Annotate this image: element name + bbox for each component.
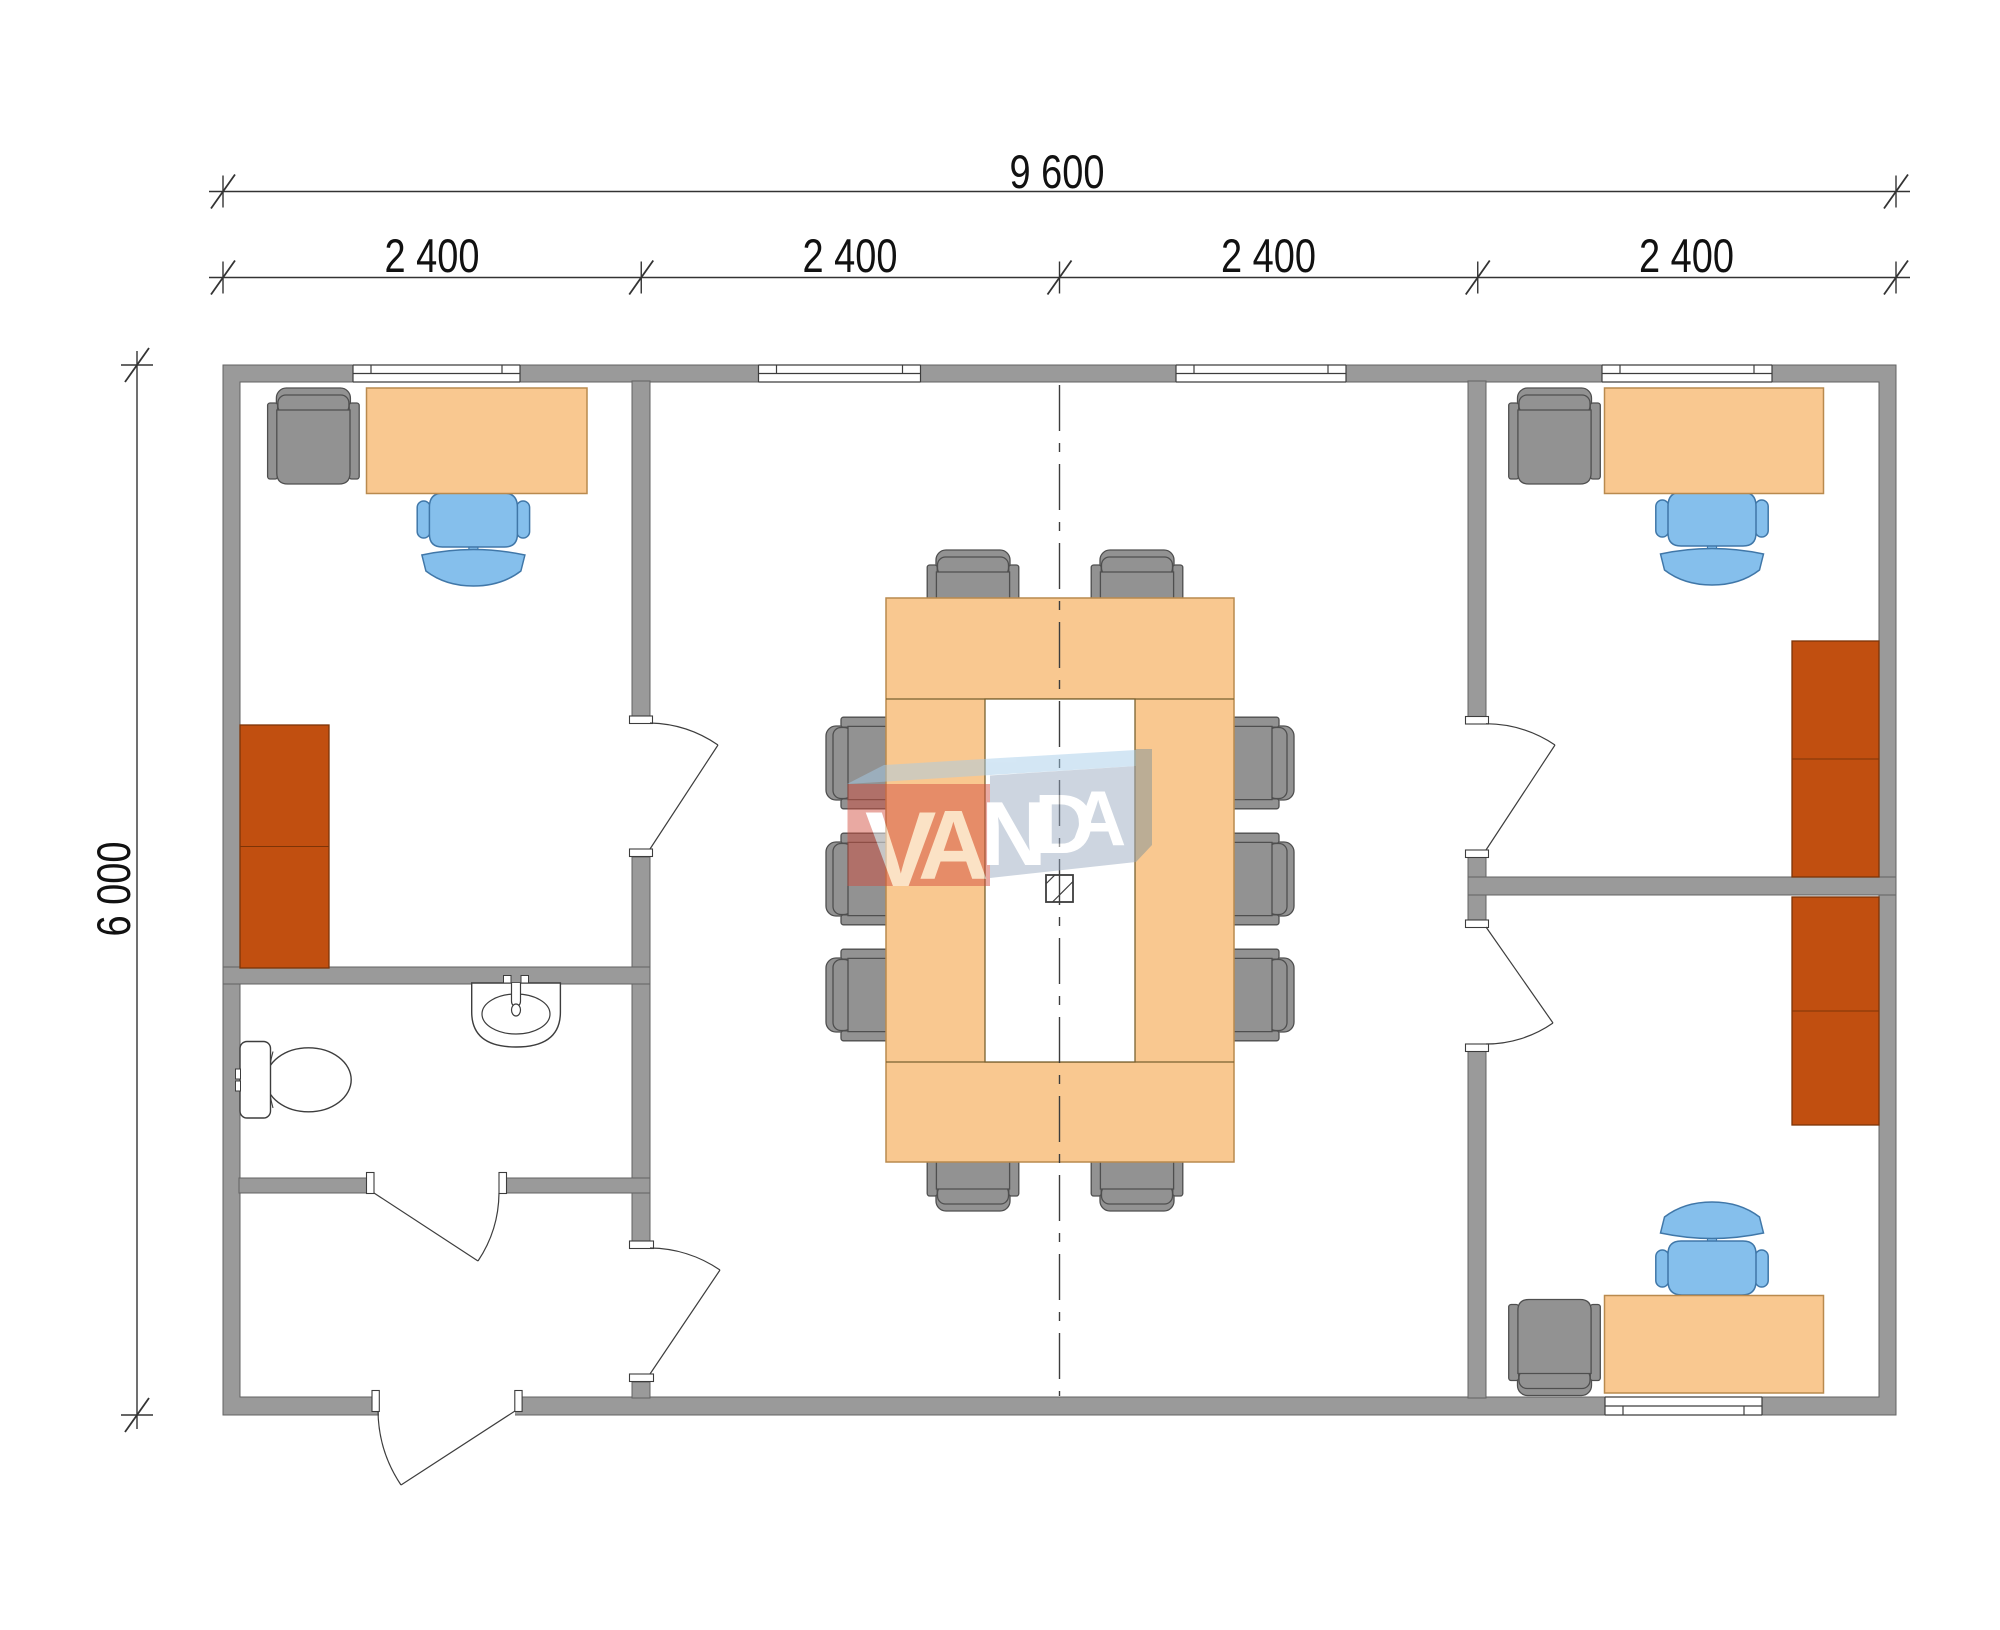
svg-text:A: A <box>1070 774 1126 862</box>
svg-text:6 000: 6 000 <box>87 842 140 937</box>
svg-text:2 400: 2 400 <box>1639 229 1734 282</box>
svg-text:2 400: 2 400 <box>385 229 480 282</box>
svg-text:A: A <box>918 790 989 900</box>
svg-text:2 400: 2 400 <box>803 229 898 282</box>
svg-text:2 400: 2 400 <box>1221 229 1316 282</box>
svg-text:9 600: 9 600 <box>1010 145 1105 198</box>
